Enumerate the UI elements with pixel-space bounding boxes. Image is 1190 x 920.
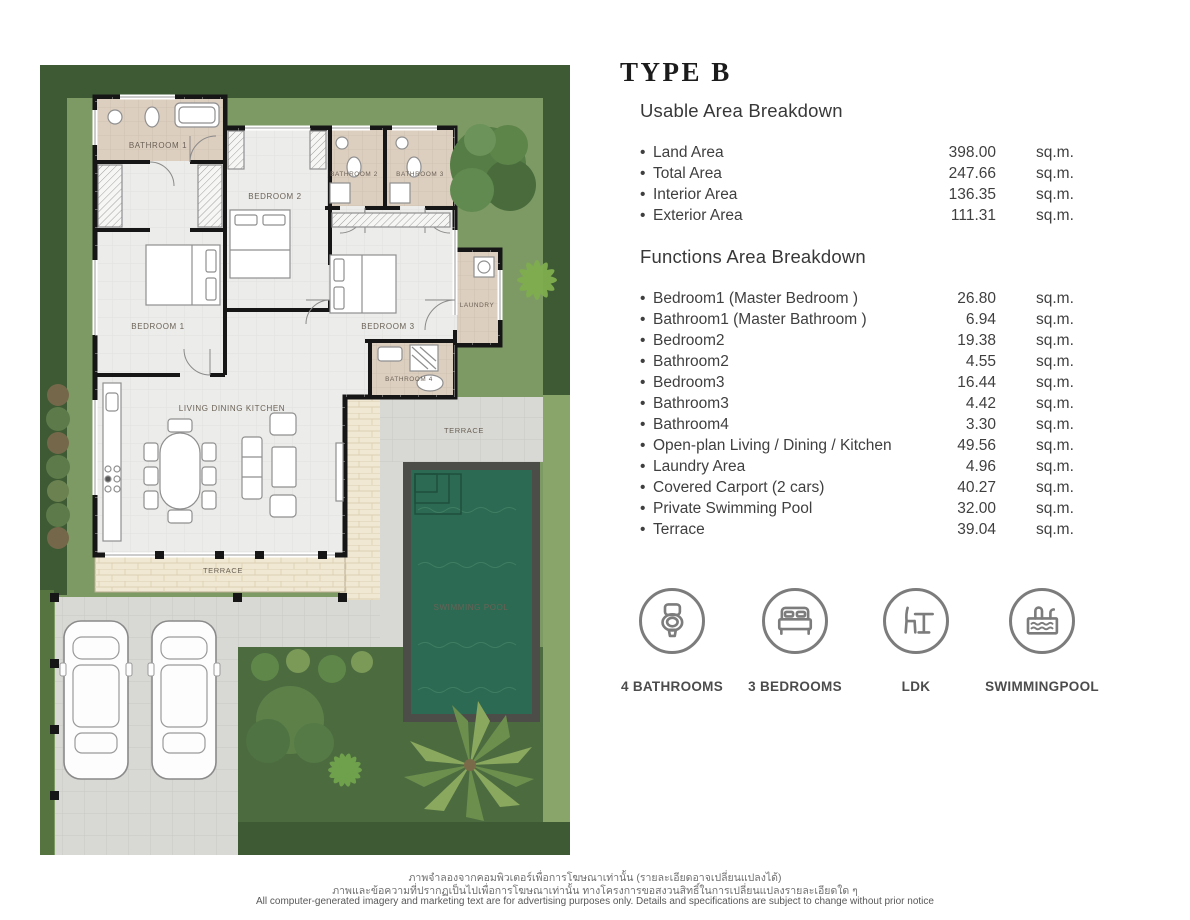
bullet: • (640, 205, 653, 226)
area-row-label: Total Area (653, 163, 722, 184)
area-row-label: Bathroom (653, 309, 720, 330)
area-row-label: Open-plan Living / Dining / Kitchen (653, 435, 892, 456)
room-label-terrace-bottom: TERRACE (203, 566, 243, 575)
feature-label-bedrooms: 3 BEDROOMS (725, 679, 865, 694)
area-row-unit: sq.m. (1036, 184, 1110, 205)
bullet: • (640, 477, 653, 498)
room-label-bathroom-4: BATHROOM 4 (385, 376, 433, 383)
disclaimer-english: All computer-generated imagery and marke… (0, 896, 1190, 907)
bullet: • (640, 288, 653, 309)
area-row-value: 4.96 (936, 456, 996, 477)
area-row-value: 4.55 (936, 351, 996, 372)
area-row-unit: sq.m. (1036, 163, 1110, 184)
room-label-bathroom-1: BATHROOM 1 (129, 141, 187, 150)
usable-area-heading: Usable Area Breakdown (640, 100, 843, 122)
area-row: •Bedroom1 (Master Bedroom ) 26.80 sq.m. (640, 288, 1110, 309)
area-row: •Bedroom3 16.44 sq.m. (640, 372, 1110, 393)
functions-area-table: •Bedroom1 (Master Bedroom ) 26.80 sq.m. … (640, 288, 1110, 540)
area-row-value: 136.35 (936, 184, 996, 205)
room-label-laundry: LAUNDRY (460, 302, 495, 309)
area-row-value: 3.30 (936, 414, 996, 435)
area-row-label: Laundry Area (653, 456, 745, 477)
page: BATHROOM 1 BEDROOM 2 BATHROOM 2 BATHROOM… (0, 0, 1190, 920)
area-row-unit: sq.m. (1036, 498, 1110, 519)
area-row-sublabel: 1 (Master Bedroom ) (716, 290, 858, 307)
area-row-unit: sq.m. (1036, 142, 1110, 163)
room-label-bedroom-2: BEDROOM 2 (248, 192, 301, 201)
area-row-sublabel: 3 (716, 374, 725, 391)
area-row-value: 40.27 (936, 477, 996, 498)
area-row-unit: sq.m. (1036, 435, 1110, 456)
area-row-name: •Bathroom4 (640, 414, 936, 435)
bullet: • (640, 435, 653, 456)
bullet: • (640, 393, 653, 414)
area-row-name: •Interior Area (640, 184, 936, 205)
area-row: •Exterior Area 111.31 sq.m. (640, 205, 1110, 226)
area-row: •Bathroom2 4.55 sq.m. (640, 351, 1110, 372)
page-title: TYPE B (620, 57, 732, 88)
area-row-unit: sq.m. (1036, 519, 1110, 540)
area-row-value: 111.31 (936, 205, 996, 226)
bullet: • (640, 330, 653, 351)
area-row-label: Exterior Area (653, 205, 743, 226)
area-row-value: 398.00 (936, 142, 996, 163)
area-row-unit: sq.m. (1036, 393, 1110, 414)
area-row-unit: sq.m. (1036, 309, 1110, 330)
pool-icon (1009, 588, 1075, 654)
area-row-value: 16.44 (936, 372, 996, 393)
area-row-value: 32.00 (936, 498, 996, 519)
bullet: • (640, 372, 653, 393)
area-row-sublabel: 2 (716, 332, 725, 349)
area-row: •Bathroom3 4.42 sq.m. (640, 393, 1110, 414)
area-row-name: •Bedroom2 (640, 330, 936, 351)
bed-icon (762, 588, 828, 654)
area-row: •Bathroom1 (Master Bathroom ) 6.94 sq.m. (640, 309, 1110, 330)
area-row: •Land Area 398.00 sq.m. (640, 142, 1110, 163)
area-row: •Interior Area 136.35 sq.m. (640, 184, 1110, 205)
area-row-label: Interior Area (653, 184, 737, 205)
area-row-label: Land Area (653, 142, 724, 163)
area-row-value: 4.42 (936, 393, 996, 414)
floorplan-svg: BATHROOM 1 BEDROOM 2 BATHROOM 2 BATHROOM… (40, 65, 570, 855)
bullet: • (640, 184, 653, 205)
car-2 (148, 621, 220, 779)
feature-bathrooms: 4 BATHROOMS (602, 588, 742, 694)
room-label-ldk: LIVING DINING KITCHEN (179, 404, 285, 413)
area-row-value: 26.80 (936, 288, 996, 309)
area-row: •Total Area 247.66 sq.m. (640, 163, 1110, 184)
swimming-pool (403, 462, 540, 722)
room-label-bathroom-3: BATHROOM 3 (396, 171, 444, 178)
area-row: •Covered Carport (2 cars) 40.27 sq.m. (640, 477, 1110, 498)
area-row-label: Private Swimming Pool (653, 498, 812, 519)
area-row-label: Covered Carport (2 cars) (653, 477, 824, 498)
area-row-unit: sq.m. (1036, 205, 1110, 226)
room-label-terrace-right: TERRACE (444, 426, 484, 435)
room-label-bedroom-3: BEDROOM 3 (361, 322, 414, 331)
room-label-swimming-pool: SWIMMING POOL (434, 603, 509, 612)
area-row-name: •Bedroom1 (Master Bedroom ) (640, 288, 936, 309)
area-row-name: •Private Swimming Pool (640, 498, 936, 519)
area-row-sublabel: 2 (720, 353, 729, 370)
area-row-label: Bedroom (653, 330, 716, 351)
area-row: •Bedroom2 19.38 sq.m. (640, 330, 1110, 351)
bullet: • (640, 351, 653, 372)
area-row-name: •Open-plan Living / Dining / Kitchen (640, 435, 936, 456)
area-row-name: •Bathroom2 (640, 351, 936, 372)
area-row-value: 49.56 (936, 435, 996, 456)
area-row-value: 247.66 (936, 163, 996, 184)
bullet: • (640, 309, 653, 330)
area-row-unit: sq.m. (1036, 477, 1110, 498)
area-row-unit: sq.m. (1036, 351, 1110, 372)
functions-area-heading: Functions Area Breakdown (640, 246, 866, 268)
area-row-label: Bathroom (653, 414, 720, 435)
feature-label-swimmingpool: SWIMMINGPOOL (972, 679, 1112, 694)
area-row-name: •Bedroom3 (640, 372, 936, 393)
room-label-bathroom-2: BATHROOM 2 (330, 171, 378, 178)
feature-label-bathrooms: 4 BATHROOMS (602, 679, 742, 694)
area-row-unit: sq.m. (1036, 288, 1110, 309)
area-row-label: Terrace (653, 519, 710, 540)
floorplan: BATHROOM 1 BEDROOM 2 BATHROOM 2 BATHROOM… (40, 65, 570, 855)
bullet: • (640, 498, 653, 519)
area-row: •Open-plan Living / Dining / Kitchen 49.… (640, 435, 1110, 456)
area-row-name: •Laundry Area (640, 456, 936, 477)
feature-ldk: LDK (846, 588, 986, 694)
area-row-name: •Terrace (640, 519, 936, 540)
area-row-unit: sq.m. (1036, 372, 1110, 393)
area-row-unit: sq.m. (1036, 414, 1110, 435)
bullet: • (640, 142, 653, 163)
area-row: •Bathroom4 3.30 sq.m. (640, 414, 1110, 435)
area-row-value: 6.94 (936, 309, 996, 330)
toilet-icon (639, 588, 705, 654)
feature-swimmingpool: SWIMMINGPOOL (972, 588, 1112, 694)
area-row-label: Bedroom (653, 372, 716, 393)
area-row-unit: sq.m. (1036, 456, 1110, 477)
bullet: • (640, 414, 653, 435)
area-row-label: Bathroom (653, 393, 720, 414)
area-row-label: Bedroom (653, 288, 716, 309)
area-row: •Private Swimming Pool 32.00 sq.m. (640, 498, 1110, 519)
table-chair-icon (883, 588, 949, 654)
bullet: • (640, 456, 653, 477)
room-label-bedroom-1: BEDROOM 1 (131, 322, 184, 331)
area-row-value: 19.38 (936, 330, 996, 351)
area-row-sublabel: 1 (Master Bathroom ) (720, 311, 866, 328)
area-row-sublabel: 3 (720, 395, 729, 412)
area-row: •Laundry Area 4.96 sq.m. (640, 456, 1110, 477)
area-row-name: •Land Area (640, 142, 936, 163)
bullet: • (640, 519, 653, 540)
area-row-unit: sq.m. (1036, 330, 1110, 351)
usable-area-table: •Land Area 398.00 sq.m. •Total Area 247.… (640, 142, 1110, 226)
area-row: •Terrace 39.04 sq.m. (640, 519, 1110, 540)
area-row-label: Bathroom (653, 351, 720, 372)
car-1 (60, 621, 132, 779)
area-row-value: 39.04 (936, 519, 996, 540)
area-row-name: •Total Area (640, 163, 936, 184)
feature-bedrooms: 3 BEDROOMS (725, 588, 865, 694)
area-row-sublabel: 4 (720, 416, 729, 433)
area-row-name: •Exterior Area (640, 205, 936, 226)
area-row-name: •Bathroom1 (Master Bathroom ) (640, 309, 936, 330)
feature-label-ldk: LDK (846, 679, 986, 694)
bullet: • (640, 163, 653, 184)
area-row-name: •Bathroom3 (640, 393, 936, 414)
area-row-name: •Covered Carport (2 cars) (640, 477, 936, 498)
